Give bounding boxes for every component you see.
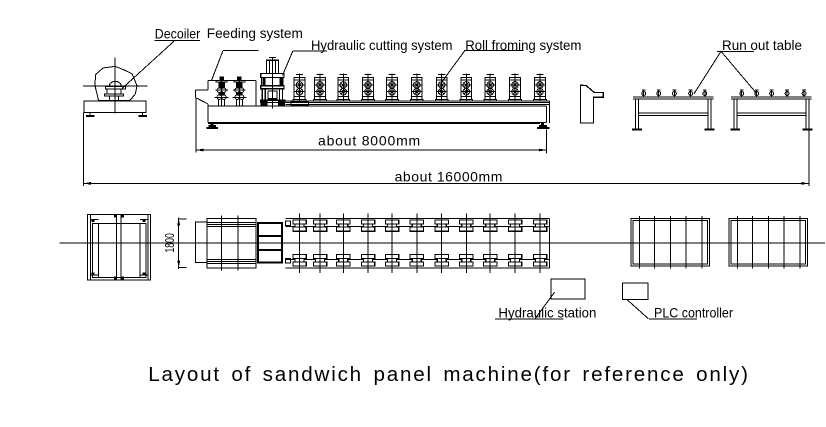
svg-text:Hydraulic cutting system: Hydraulic cutting system [311,37,453,53]
svg-text:1800: 1800 [162,233,177,253]
svg-text:Decoiler: Decoiler [155,26,201,42]
svg-text:PLC controller: PLC controller [654,304,733,320]
svg-text:Hydraulic station: Hydraulic station [498,304,596,320]
svg-text:about 8000mm: about 8000mm [318,133,421,149]
svg-text:about 16000mm: about 16000mm [395,168,503,184]
svg-text:Run out table: Run out table [722,37,802,53]
svg-text:Layout of sandwich panel machi: Layout of sandwich panel machine(for ref… [148,363,750,386]
svg-text:Feeding system: Feeding system [207,25,303,41]
